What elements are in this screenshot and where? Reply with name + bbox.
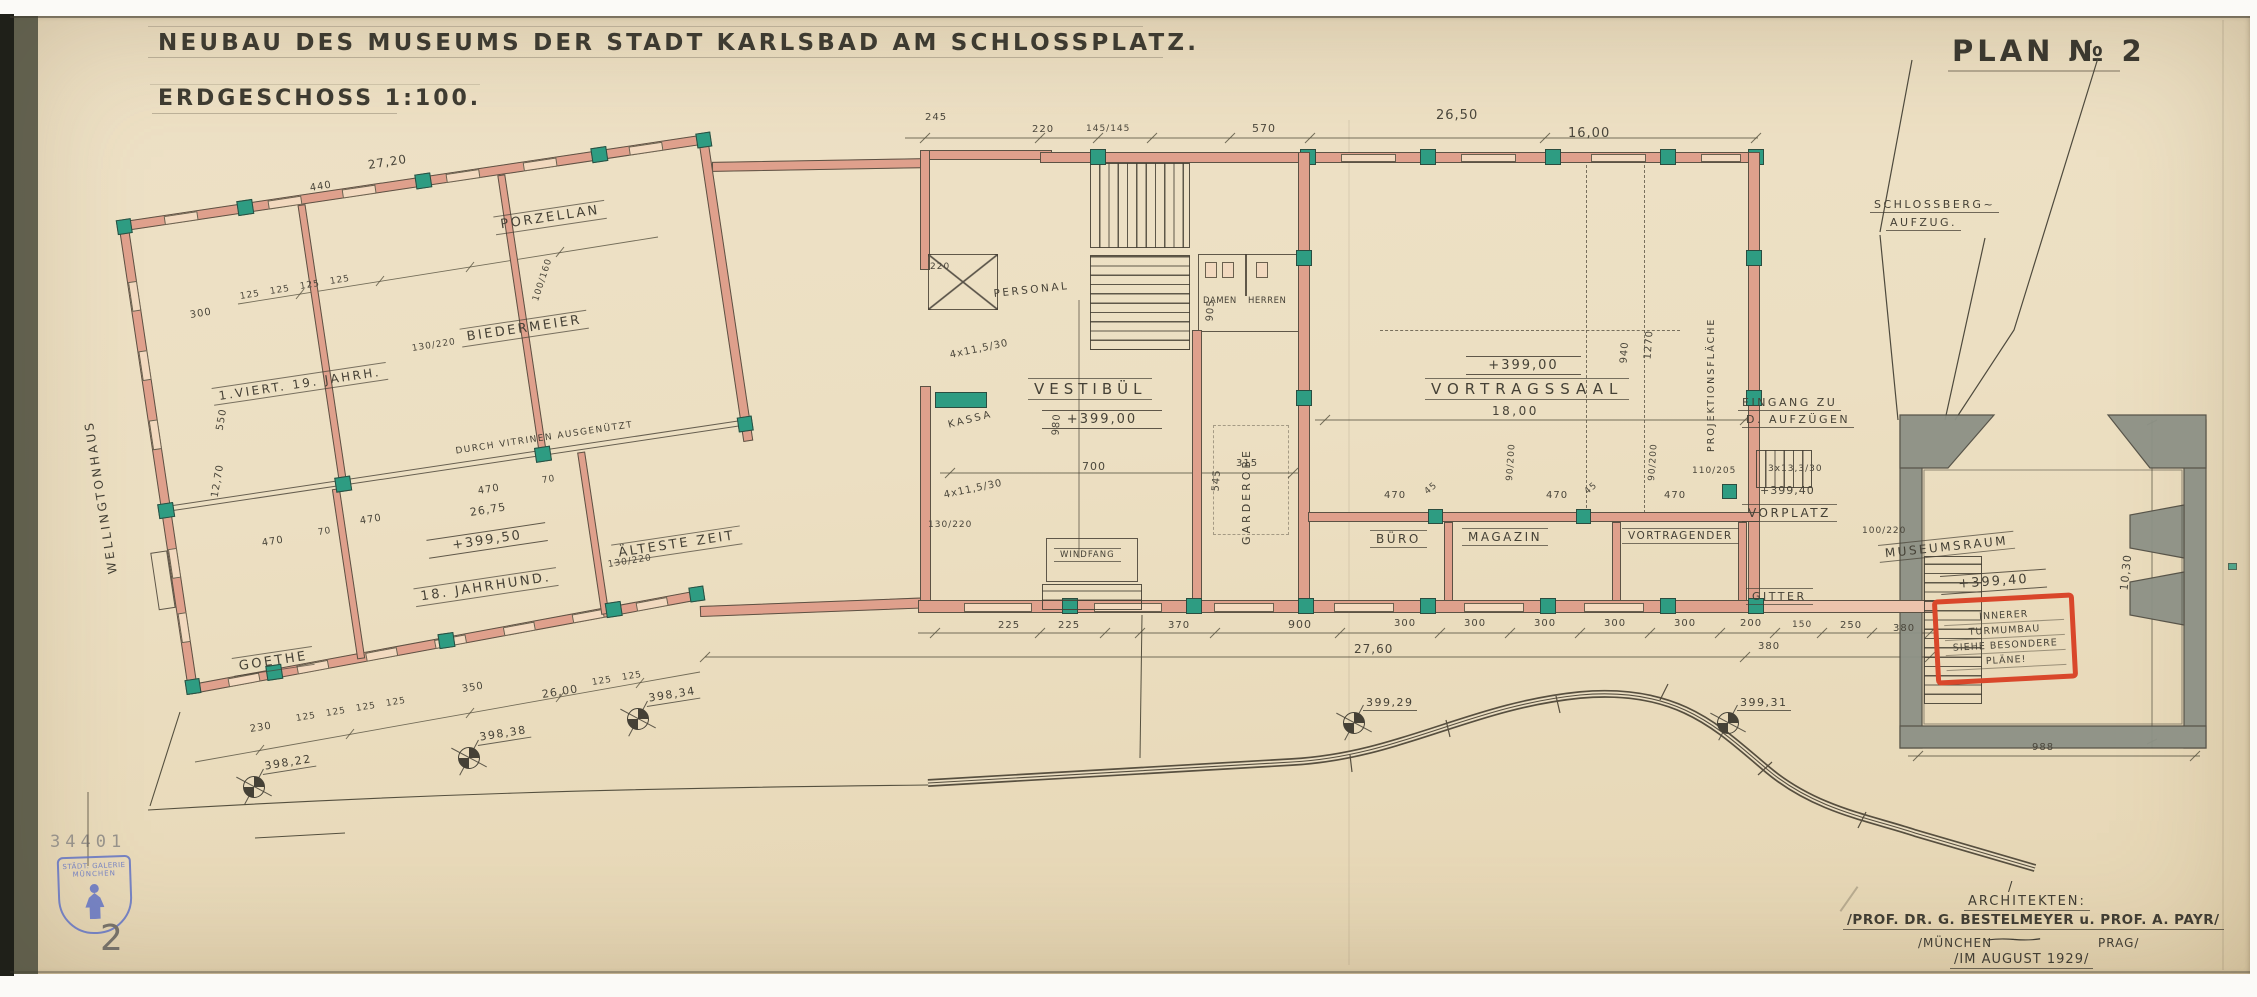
window bbox=[1584, 603, 1644, 612]
dimension-label: 545 bbox=[1211, 469, 1224, 492]
floor-level-left-wing: +399,50 bbox=[426, 522, 547, 559]
wall-segment bbox=[1040, 152, 1760, 163]
label-projektionsflaeche: PROJEKTIONSFLÄCHE bbox=[1706, 318, 1717, 452]
wall-segment bbox=[1298, 152, 1310, 614]
dimension-label: 220 bbox=[930, 262, 950, 272]
dimension-label: 245 bbox=[925, 112, 947, 123]
dimension-label: 570 bbox=[1252, 122, 1276, 135]
dimension-label: 225 bbox=[1058, 620, 1080, 631]
windfang-boundary bbox=[1140, 615, 1142, 758]
pier-column bbox=[1540, 598, 1556, 614]
dimension-label: 315 bbox=[1236, 458, 1258, 469]
pier-column bbox=[334, 475, 352, 492]
saal-width-label: 18,00 bbox=[1492, 404, 1539, 418]
pier-column bbox=[1428, 509, 1443, 524]
window bbox=[1701, 154, 1741, 162]
window bbox=[1214, 603, 1274, 612]
window bbox=[365, 647, 398, 662]
dimension-label: 980 bbox=[1051, 413, 1064, 436]
benchmark-marker: 398,34 bbox=[627, 708, 649, 730]
curved-wall-center bbox=[928, 694, 2035, 868]
sheet-page-number: 2 bbox=[100, 918, 125, 959]
dimension-label: +399,40 bbox=[1760, 484, 1815, 497]
pier-column bbox=[590, 146, 608, 163]
window bbox=[628, 142, 663, 156]
wall-segment bbox=[1192, 330, 1202, 602]
window bbox=[178, 612, 191, 643]
red-note-box: INNERER TURMUMBAU SIEHE BESONDERE PLÄNE! bbox=[1932, 592, 2078, 685]
pier-column bbox=[935, 392, 987, 408]
window bbox=[1222, 262, 1234, 278]
dimension-label: 100/220 bbox=[1862, 526, 1906, 536]
benchmark-icon bbox=[1343, 712, 1365, 734]
window bbox=[503, 622, 536, 637]
pier-column bbox=[605, 601, 623, 618]
dimension-label: 130/220 bbox=[928, 520, 972, 530]
pier-column bbox=[1090, 149, 1106, 165]
window bbox=[1205, 262, 1217, 278]
wall-segment bbox=[920, 386, 931, 602]
curved-wall-outer bbox=[928, 694, 2035, 868]
dimension-label: 940 bbox=[1619, 341, 1632, 364]
benchmark-icon bbox=[627, 708, 649, 730]
pier-column bbox=[1420, 149, 1436, 165]
dimension-label: 250 bbox=[1840, 620, 1862, 631]
pier-column bbox=[1186, 598, 1202, 614]
pier-column bbox=[1296, 390, 1312, 406]
pier-column bbox=[1746, 250, 1762, 266]
window bbox=[523, 158, 558, 172]
room-label-buero: BÜRO bbox=[1370, 530, 1427, 548]
label-eingang-line2: D. AUFZÜGEN bbox=[1742, 413, 1854, 428]
wall-segment bbox=[1748, 152, 1760, 614]
window bbox=[342, 185, 377, 199]
dimension-label: 905 bbox=[1205, 299, 1218, 322]
window bbox=[149, 419, 162, 450]
benchmark-elevation: 399,31 bbox=[1737, 696, 1791, 711]
window bbox=[1341, 154, 1396, 162]
room-label-viert19: 1.VIERT. 19. JAHRH. bbox=[212, 362, 388, 406]
dimension-label: 220 bbox=[1032, 124, 1054, 135]
dimension-label: 470 bbox=[1384, 490, 1406, 501]
pier-column bbox=[236, 199, 254, 216]
stair-flight bbox=[1042, 584, 1142, 610]
credit-architects: /PROF. DR. G. BESTELMEYER u. PROF. A. PA… bbox=[1843, 912, 2224, 930]
dimension-label: 70 bbox=[317, 526, 332, 538]
benchmark-icon bbox=[1717, 712, 1739, 734]
pier-column bbox=[1576, 509, 1591, 524]
benchmark-marker: 399,31 bbox=[1717, 712, 1739, 734]
window bbox=[1591, 154, 1646, 162]
label-gitter: GITTER bbox=[1746, 588, 1813, 605]
window bbox=[1464, 603, 1524, 612]
window bbox=[1256, 262, 1268, 278]
wall-segment bbox=[920, 150, 930, 270]
pier-column bbox=[1298, 598, 1314, 614]
room-label-18jahrhundert: 18. JAHRHUND. bbox=[413, 567, 558, 607]
dimension-label: 145/145 bbox=[1086, 124, 1130, 134]
credit-slash: / bbox=[2008, 880, 2012, 895]
dimension-label: 300 bbox=[1674, 618, 1696, 629]
benchmark-marker: 398,38 bbox=[458, 747, 480, 769]
window bbox=[636, 597, 669, 612]
wall-segment bbox=[1612, 522, 1621, 610]
dimension-label: 900 bbox=[1288, 618, 1312, 631]
room-label-porzellan: PORZELLAN bbox=[493, 200, 607, 235]
guide-line bbox=[87, 792, 89, 866]
pier-column bbox=[688, 586, 705, 603]
dimension-label: 200 bbox=[1740, 618, 1762, 629]
dimension-label: 380 bbox=[1893, 623, 1915, 634]
pier-column bbox=[1722, 484, 1737, 499]
benchmark-icon bbox=[458, 747, 480, 769]
benchmark-elevation: 399,29 bbox=[1363, 696, 1417, 711]
credit-date: /IM AUGUST 1929/ bbox=[1950, 952, 2093, 969]
label-schlossberg-line2: AUFZUG. bbox=[1886, 216, 1961, 231]
scanned-plan-sheet: NEUBAU DES MUSEUMS DER STADT KARLSBAD AM… bbox=[0, 0, 2257, 997]
wall-segment bbox=[577, 451, 609, 614]
dimension-label: 700 bbox=[1082, 460, 1106, 473]
site-boundary-line bbox=[1880, 58, 2098, 420]
wall-segment bbox=[1444, 522, 1453, 610]
room-label-windfang: WINDFANG bbox=[1054, 548, 1121, 562]
floor-level-saal: +399,00 bbox=[1466, 356, 1581, 375]
dimension-label: 70 bbox=[541, 474, 556, 486]
window bbox=[1461, 154, 1516, 162]
pier-column bbox=[116, 218, 133, 235]
wall-segment bbox=[298, 204, 347, 482]
dimension-label: 370 bbox=[1168, 620, 1190, 631]
window bbox=[446, 169, 481, 183]
pier-column bbox=[1420, 598, 1436, 614]
window bbox=[138, 350, 151, 381]
stair-flight bbox=[1090, 255, 1190, 350]
dimension-label: 27,60 bbox=[1354, 642, 1393, 656]
dimension-label: 16,00 bbox=[1568, 126, 1610, 141]
wall-segment bbox=[332, 488, 365, 659]
room-label-vestibuel: VESTIBÜL bbox=[1028, 378, 1152, 400]
pier-column bbox=[157, 502, 175, 519]
wall-segment bbox=[1308, 512, 1760, 522]
dimension-label: 988 bbox=[2032, 742, 2054, 753]
dimension-label: 470 bbox=[1546, 490, 1568, 501]
pier-column bbox=[184, 678, 201, 695]
window bbox=[964, 603, 1032, 612]
wall-segment bbox=[920, 150, 1052, 160]
dimension-label: 110/205 bbox=[1692, 466, 1736, 476]
credit-wave: ~ bbox=[1979, 932, 2049, 948]
label-vorplatz: VORPLATZ bbox=[1742, 504, 1837, 522]
dimension-label: 225 bbox=[998, 620, 1020, 631]
dimension-label: 3x13,3/30 bbox=[1768, 464, 1823, 474]
dimension-label: 300 bbox=[1604, 618, 1626, 629]
room-label-vortragender: VORTRAGENDER bbox=[1622, 528, 1739, 544]
label-eingang-line1: EINGANG ZU bbox=[1738, 396, 1841, 411]
credit-heading: ARCHITEKTEN: bbox=[1964, 894, 2090, 911]
dimension-label: 470 bbox=[1664, 490, 1686, 501]
credit-prag: PRAG/ bbox=[2098, 936, 2139, 950]
dimension-label: 1270 bbox=[1643, 330, 1656, 360]
pier-column bbox=[1660, 149, 1676, 165]
dashed-line bbox=[1380, 330, 1680, 333]
benchmark-marker: 398,22 bbox=[243, 776, 265, 798]
window bbox=[128, 281, 141, 312]
pier-column bbox=[437, 632, 455, 649]
room-label-herren: HERREN bbox=[1248, 296, 1286, 306]
window bbox=[1334, 603, 1394, 612]
pier-column bbox=[1296, 250, 1312, 266]
pier-column bbox=[695, 131, 712, 148]
thin-outline bbox=[1245, 254, 1247, 296]
dimension-label: 300 bbox=[1534, 618, 1556, 629]
stair-flight bbox=[1090, 163, 1190, 248]
thin-outline bbox=[170, 420, 743, 511]
dashed-line bbox=[1586, 165, 1589, 513]
pier-column bbox=[1545, 149, 1561, 165]
pier-column bbox=[737, 415, 754, 432]
dimension-label: 300 bbox=[1394, 618, 1416, 629]
dimension-label: 300 bbox=[1464, 618, 1486, 629]
stamp-figure-icon bbox=[85, 893, 105, 920]
dimension-label: 380 bbox=[1758, 641, 1780, 652]
benchmark-icon bbox=[243, 776, 265, 798]
dimension-label: 150 bbox=[1792, 620, 1812, 630]
pier-column bbox=[1660, 598, 1676, 614]
thin-outline bbox=[1078, 300, 1080, 558]
curved-wall-fill bbox=[928, 694, 2035, 868]
pier-column bbox=[534, 446, 552, 463]
label-schlossberg-line1: SCHLOSSBERG~ bbox=[1870, 198, 1999, 213]
room-label-vortragssaal: VORTRAGSSAAL bbox=[1425, 378, 1629, 400]
pier-column bbox=[414, 172, 432, 189]
window bbox=[572, 609, 605, 624]
stamp-figure-icon bbox=[90, 884, 99, 893]
room-label-magazin: MAGAZIN bbox=[1462, 528, 1548, 546]
benchmark-marker: 399,29 bbox=[1343, 712, 1365, 734]
dimension-label: 26,50 bbox=[1436, 108, 1478, 123]
window bbox=[164, 211, 199, 225]
